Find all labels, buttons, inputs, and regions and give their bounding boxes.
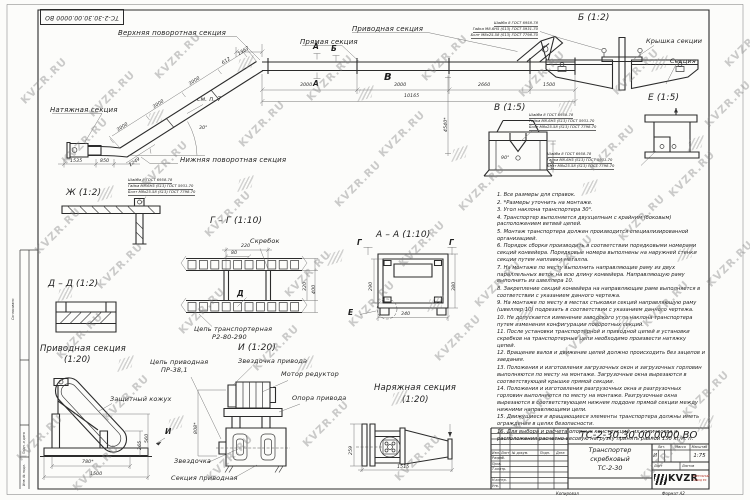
- dim-560: 560: [145, 434, 150, 443]
- view-aa-title: А – А (1:10): [376, 230, 430, 240]
- dim-3000-a: 3000: [300, 83, 312, 88]
- drive-section-label: Приводная секция: [352, 25, 423, 33]
- left-col-soglasovano: Согласовано: [11, 299, 15, 320]
- cut-marker-a-bottom: А: [313, 79, 319, 88]
- top-stamp-box: ТС-2-30.30.00.0000 ВО: [40, 9, 124, 25]
- view-v-title: В (1:5): [494, 103, 526, 113]
- row-razrab: Разраб.: [492, 456, 505, 460]
- col-ndoc: № докум.: [512, 451, 528, 455]
- sheets-label: Листов: [682, 464, 694, 468]
- sheet-label: Лист: [654, 464, 662, 468]
- dim-220: 220: [241, 244, 250, 249]
- note-item: 8. Закрепление секций конвейера на напра…: [497, 286, 706, 300]
- left-col-inv-podl: Инв. № подл.: [22, 464, 26, 486]
- dim-265: 265: [138, 441, 143, 450]
- top-stamp-number: ТС-2-30.30.00.0000 ВО: [45, 14, 119, 21]
- see-note-label: см. п. 7: [197, 96, 221, 103]
- view-gg-geometry: [181, 248, 318, 327]
- kvzr-logo-sub2: ЗАВОД РФ: [693, 479, 706, 482]
- drive-view-title: Приводная секция: [40, 344, 126, 354]
- straight-section-label: Прямая секция: [300, 38, 358, 46]
- chain-label-line1: Цепь транспортерная: [194, 325, 272, 333]
- view-dd-title: Д – Д (1:2): [48, 279, 98, 289]
- product-name-line2: скребковый: [570, 456, 650, 463]
- tension-view-title: Наряжная секция: [374, 383, 456, 393]
- view-dd-geometry: [56, 302, 116, 332]
- hw-bolt: Болт М8х25.58 (S13) ГОСТ 7798-70: [471, 33, 538, 39]
- drive-section-geometry: [40, 372, 257, 480]
- hardware-callout-v: Шайба 8 ГОСТ 6958-78 Гайка М8-6Н5 (S13) …: [529, 113, 596, 131]
- notes-list: 1. Все размеры для справок. 2. *Размеры …: [497, 192, 706, 443]
- title-block-doc-number: ТС-2-30.30.00.0000 ВО: [570, 430, 707, 441]
- dim-340: 340: [401, 312, 410, 317]
- scraper-label: Скребок: [250, 237, 280, 245]
- view-zh-title: Ж (1:2): [66, 188, 101, 198]
- dim-1535: 1535: [70, 159, 82, 164]
- note-item: 3. Угол наклона транспортера 30°.: [497, 207, 706, 214]
- hw-bolt: Болт М8х25.58 (S13) ГОСТ 7798-70: [128, 190, 195, 196]
- sprocket-label: Звездочка: [174, 457, 211, 465]
- dim-1500: 1500: [543, 83, 555, 88]
- dim-850: 850: [100, 159, 109, 164]
- hardware-callout-b: Шайба 8 ГОСТ 6958-78 Гайка М8-6Н5 (S13) …: [452, 21, 538, 39]
- format-label: Формат А2: [662, 491, 685, 496]
- dim-2660: 2660: [478, 83, 490, 88]
- row-tkontr: Т.контр.: [492, 467, 506, 471]
- dim-90deg: 90°: [501, 156, 510, 161]
- drive-sprocket-label: Звездочка привода: [238, 357, 307, 365]
- dim-3000-b: 3000: [394, 83, 406, 88]
- col-podp: Подп.: [540, 451, 550, 455]
- drive-support-label: Опора привода: [292, 394, 346, 402]
- note-item: 2. *Размеры уточнить на монтаже.: [497, 200, 706, 207]
- note-item: 6. Порядок сборки производить в соответс…: [497, 243, 706, 264]
- dim-808: 808*: [194, 422, 199, 434]
- upper-turn-label: Верхняя поворотная секция: [118, 29, 226, 37]
- view-e-title: Е (1:5): [648, 93, 679, 103]
- lit-header: Лит.: [652, 445, 671, 449]
- note-item: 7. На монтаже по месту выполнить направл…: [497, 265, 706, 286]
- view-i-title: И (1:20): [238, 343, 276, 353]
- hw-bolt: Болт М8х25.58 (S13) ГОСТ 7798-70: [547, 164, 614, 170]
- hardware-callout-zh: Шайба 8 ГОСТ 6958-78 Гайка М8-6Н5 (S13) …: [128, 178, 195, 196]
- cut-marker-a-top: А: [313, 42, 319, 51]
- drive-chain-label-line1: Цепь приводная: [150, 358, 208, 366]
- lower-turn-label: Нижняя поворотная секция: [180, 156, 286, 164]
- dim-780: 780*: [82, 460, 94, 465]
- dim-400: 400: [312, 285, 317, 294]
- detail-marker-e: Е: [348, 308, 353, 317]
- cut-marker-g-right: Г: [449, 238, 454, 247]
- dim-10165: 10165: [404, 94, 419, 99]
- col-list: Лист: [501, 451, 509, 455]
- scale-value: 1:75: [690, 453, 709, 459]
- product-name-line1: Транспортер: [570, 447, 650, 454]
- dim-80: 80: [231, 251, 237, 256]
- dim-angle-30: 30°: [199, 126, 208, 131]
- row-prov: Пров.: [492, 462, 502, 466]
- note-item: 10. Не допускается изменение заводского …: [497, 315, 706, 329]
- dim-259: 259: [349, 446, 354, 455]
- zone-marker-v: В: [384, 72, 392, 83]
- view-gg-title: Г – Г (1:10): [210, 216, 262, 226]
- note-item: 11. После установки транспортерной и при…: [497, 329, 706, 350]
- note-item: 15. Движущиеся и вращающиеся элементы тр…: [497, 414, 706, 428]
- note-item: 12. Вращение валов и движение цепей долж…: [497, 350, 706, 364]
- dim-1500-drive: 1500: [90, 472, 102, 477]
- drawing-sheet: { "watermark": { "text": "KVZR.RU" }, "f…: [0, 0, 750, 500]
- kvzr-logo-icon: [654, 474, 667, 485]
- cut-marker-b: Б: [331, 44, 337, 53]
- protective-cover-label: Защитный кожух: [110, 395, 172, 403]
- dim-290: 290: [369, 282, 374, 291]
- cover-label: Крышка секции: [646, 37, 702, 45]
- view-zh-geometry: [62, 197, 160, 245]
- scale-header: Масштаб: [690, 445, 709, 449]
- row-utv: Утв.: [492, 484, 499, 488]
- tension-section-label: Натяжная секция: [50, 106, 118, 114]
- section-label: Секция: [670, 57, 696, 65]
- kopiroval-label: Копировал: [556, 491, 579, 496]
- chain-label-line2: Р2-80-290: [212, 333, 247, 341]
- kvzr-logo-sub1: КОТЕЛЬНЫЙ: [693, 475, 709, 478]
- hardware-callout-e: Шайба 8 ГОСТ 6958-78 Гайка М8-6Н5 (S13) …: [547, 152, 614, 170]
- note-item: 4. Транспортер выполняется двухцепным с …: [497, 215, 706, 229]
- dim-4540: 4540*: [444, 117, 449, 132]
- detail-marker-d: Д: [237, 289, 244, 298]
- col-izm: Изм.: [492, 451, 500, 455]
- lit-value: И: [652, 453, 658, 459]
- view-b-title: Б (1:2): [578, 13, 610, 23]
- col-data: Дата: [556, 451, 565, 455]
- note-item: 9. На монтаже по месту в местах стыковки…: [497, 300, 706, 314]
- cut-marker-g-left: Г: [357, 238, 362, 247]
- left-col-podp-data: Подп. и дата: [22, 432, 26, 454]
- motor-reducer-label: Мотор редуктор: [281, 370, 339, 378]
- drive-chain-label-line2: ПР-38,1: [161, 366, 188, 374]
- dim-380: 380: [452, 282, 457, 291]
- note-item: 5. Монтаж транспортера должен производит…: [497, 229, 706, 243]
- tension-view-scale: (1:20): [402, 395, 429, 405]
- drive-view-scale: (1:20): [64, 355, 91, 365]
- row-nkontr: Н.контр.: [492, 478, 507, 482]
- note-item: 14. Положения и изготовления разгрузочны…: [497, 386, 706, 414]
- product-name-line3: ТС-2-30: [570, 465, 650, 472]
- hw-bolt: Болт М8х25.58 (S13) ГОСТ 7798-70: [529, 125, 596, 131]
- main-conveyor-geometry: [52, 33, 578, 168]
- note-item: 13. Положения и изготовления загрузочных…: [497, 365, 706, 386]
- note-item: 1. Все размеры для справок.: [497, 192, 706, 199]
- view-aa-geometry: [360, 247, 458, 321]
- dim-1515: 1515: [397, 465, 409, 470]
- drive-section-caption: Секция приводная: [171, 474, 238, 482]
- detail-marker-i: И: [165, 427, 171, 436]
- view-e-geometry: [645, 108, 699, 158]
- mass-header: Масса: [671, 445, 690, 449]
- dim-320: 320: [303, 282, 308, 291]
